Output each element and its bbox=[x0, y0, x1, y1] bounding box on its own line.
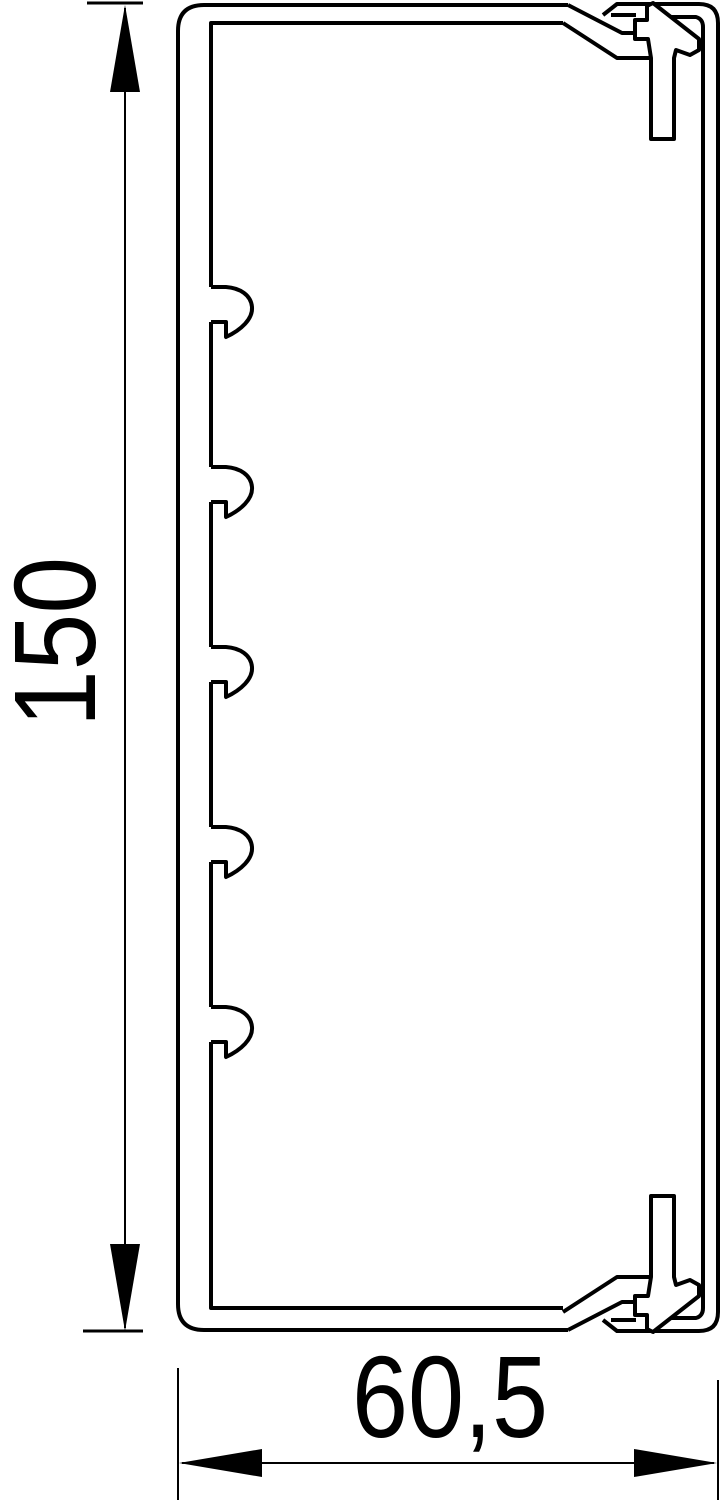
height-dimension: 150 bbox=[0, 3, 143, 1331]
technical-drawing-canvas: 150 60,5 bbox=[0, 0, 721, 1500]
wire-clip bbox=[211, 827, 252, 877]
wire-clip bbox=[211, 647, 252, 697]
base-inner-contour-top bbox=[211, 23, 563, 287]
cover-outer-contour bbox=[603, 4, 718, 1331]
width-dim-label: 60,5 bbox=[352, 1332, 548, 1462]
cable-duct-cross-section: 150 60,5 bbox=[0, 0, 721, 1500]
cover-inner-contour bbox=[655, 17, 703, 1318]
latch-hook-bottom bbox=[635, 1196, 699, 1332]
duct-profile bbox=[178, 3, 718, 1332]
base-outer-ramp-bottom bbox=[568, 1302, 635, 1330]
width-dimension: 60,5 bbox=[178, 1332, 718, 1500]
width-dim-arrow-right bbox=[634, 1449, 717, 1477]
base-outer-contour bbox=[178, 5, 568, 1330]
width-dim-arrow-left bbox=[179, 1449, 262, 1477]
latch-hook-top bbox=[635, 3, 699, 139]
base-inner-contour-bottom bbox=[211, 1042, 563, 1308]
wire-clip bbox=[211, 1007, 252, 1057]
wire-clip bbox=[211, 467, 252, 517]
height-dim-arrow-down bbox=[110, 1244, 140, 1331]
height-dim-label: 150 bbox=[0, 557, 120, 727]
wire-clip bbox=[211, 287, 252, 337]
base-outer-ramp-top bbox=[568, 5, 635, 33]
height-dim-arrow-up bbox=[110, 5, 140, 92]
